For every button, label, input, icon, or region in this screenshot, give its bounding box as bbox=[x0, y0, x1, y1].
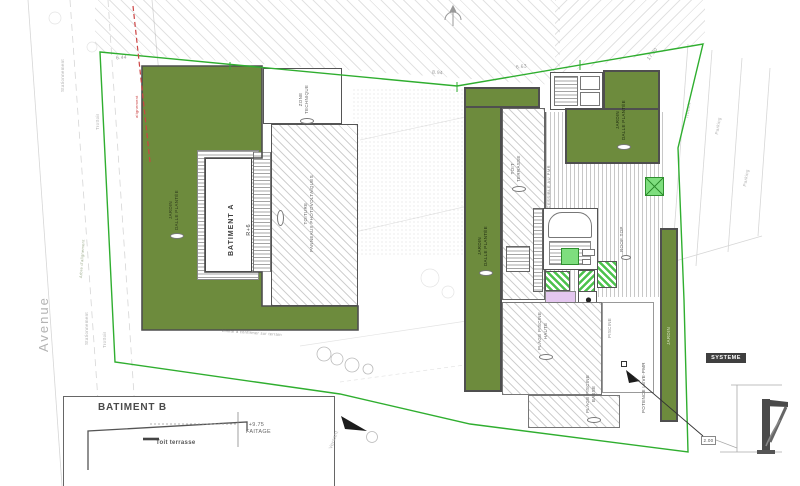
pool-deck-lower-label: PLAGE PISCINE BASSE bbox=[585, 375, 596, 413]
edicule-room-2 bbox=[580, 92, 600, 106]
spa-square-3 bbox=[597, 261, 617, 288]
dim-663: 6.63 bbox=[516, 63, 528, 71]
roof-top-marker bbox=[621, 255, 631, 260]
dim-894: 8.94 bbox=[432, 70, 443, 77]
pool-deck-lower bbox=[528, 395, 620, 428]
spa-square-2 bbox=[578, 270, 595, 293]
right-garden-strip-label: JARDIN DALLE PLANTÉE bbox=[477, 226, 488, 266]
right-garden-main-marker bbox=[617, 144, 631, 150]
site-plan-canvas: BATIMENT A R+6 ZONE TECHNIQUE TOITURE PA… bbox=[0, 0, 800, 486]
arbre-alignement-note: Arbre d'alignement bbox=[78, 239, 86, 278]
right-garden-upper bbox=[603, 70, 660, 110]
pool-deck-lower-marker bbox=[587, 417, 601, 423]
potence-marker bbox=[621, 361, 627, 367]
batiment-a-name: BATIMENT A bbox=[228, 204, 235, 256]
faitage-value: +9.75 bbox=[249, 422, 264, 428]
spa-square-1 bbox=[545, 271, 570, 291]
stair-ladder-strip bbox=[533, 208, 543, 292]
zone-technique-label: ZONE TECHNIQUE bbox=[298, 85, 309, 114]
street-trottoir-3: Trottoir bbox=[684, 102, 692, 119]
ladder-strip bbox=[253, 152, 271, 272]
alignement-note: alignement bbox=[134, 95, 139, 118]
solar-roof bbox=[271, 124, 358, 306]
solar-roof-label: TOITURE PANNEAUX PHOTOVOLTAÏQUES bbox=[303, 175, 314, 252]
faitage-word: FAITAGE bbox=[246, 429, 271, 435]
leader-wedge-center bbox=[341, 416, 367, 431]
street-stationnement-1: Stationnement bbox=[60, 59, 66, 92]
terrace-deck-label: TOIT TERRASSE bbox=[510, 155, 521, 182]
lift-shaft bbox=[548, 212, 592, 238]
batiment-a-label: BATIMENT A R+6 bbox=[219, 204, 254, 256]
fixture-1 bbox=[582, 249, 595, 256]
fixture-2 bbox=[582, 259, 591, 265]
dim-644: 6.44 bbox=[116, 55, 127, 62]
potence-detail bbox=[716, 385, 788, 454]
systeme-label-box: SYSTEME bbox=[706, 353, 746, 363]
pool-deck-upper-label: PLAGE PISCINE HAUTE bbox=[537, 312, 548, 350]
right-garden-main-label: JARDIN DALLE PLANTÉE bbox=[615, 100, 626, 140]
roof-top-label: ROOF TOP bbox=[619, 226, 625, 252]
batiment-b-title: BATIMENT B bbox=[98, 402, 167, 415]
street-avenue: Avenue bbox=[36, 296, 52, 352]
edicule-room-1 bbox=[580, 76, 600, 90]
systeme-label: SYSTEME bbox=[711, 355, 741, 362]
section-toit-terrasse-label: Toit terrasse bbox=[156, 440, 195, 448]
street-parking-2: Parking bbox=[742, 169, 751, 187]
right-garden-edge-label: JARDIN bbox=[666, 327, 672, 345]
garden-a-level-marker bbox=[170, 233, 184, 239]
batiment-a-level: R+6 bbox=[246, 224, 252, 236]
neighbour-hatch-top-right bbox=[555, 0, 705, 76]
dim-200: 2.00 bbox=[704, 438, 714, 444]
terrace-deck-marker bbox=[512, 186, 526, 192]
street-trottoir-1: Trottoir bbox=[95, 114, 101, 130]
potence-label: POTENCE LEVE-PMR bbox=[641, 362, 647, 413]
garden-a-label: JARDIN DALLE PLANTÉE bbox=[168, 190, 179, 230]
pool-label: PISCINE bbox=[607, 318, 613, 338]
right-garden-top-band bbox=[464, 87, 540, 108]
street-trottoir-2: Trottoir bbox=[102, 332, 108, 348]
edicule-stair bbox=[554, 76, 578, 106]
green-cross-pad bbox=[645, 177, 664, 196]
dim-200-box: 2.00 bbox=[701, 436, 716, 445]
solar-roof-level-marker bbox=[277, 210, 284, 226]
gravel-stipple bbox=[352, 88, 464, 256]
section-faitage-label: +9.75 FAITAGE bbox=[242, 415, 271, 436]
right-garden-main bbox=[565, 108, 660, 164]
jacuzzi-pad bbox=[561, 248, 579, 265]
right-garden-strip-marker bbox=[479, 270, 493, 276]
street-parking-1: Parking bbox=[714, 117, 723, 135]
right-garden-edge-strip bbox=[660, 228, 678, 422]
pool-deck-upper-marker bbox=[539, 354, 553, 360]
deck-stair bbox=[506, 246, 530, 272]
street-stationnement-2: Stationnement bbox=[84, 312, 90, 345]
